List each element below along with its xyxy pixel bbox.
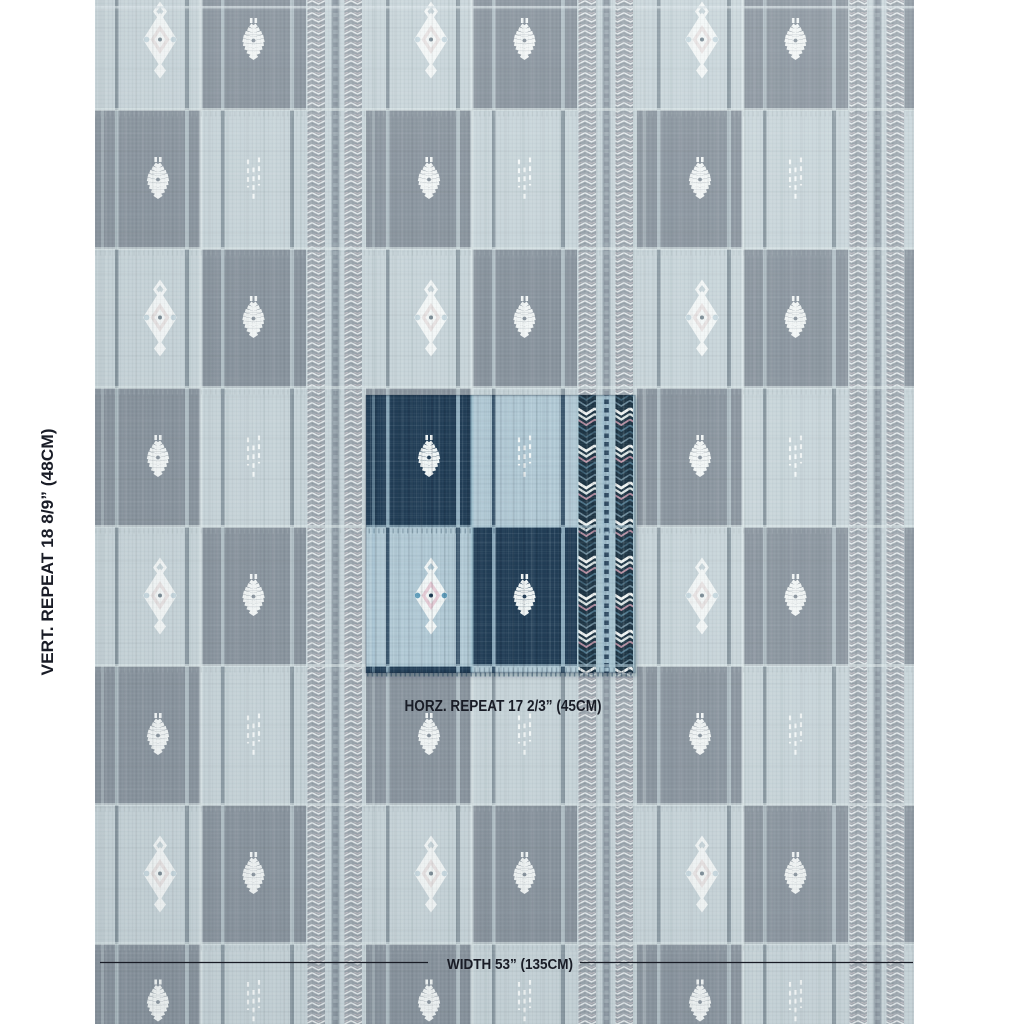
svg-text:HORZ. REPEAT 17 2/3” (45CM): HORZ. REPEAT 17 2/3” (45CM) xyxy=(405,698,602,715)
svg-text:VERT. REPEAT 18 8/9” (48CM): VERT. REPEAT 18 8/9” (48CM) xyxy=(38,429,57,676)
svg-text:WIDTH 53” (135CM): WIDTH 53” (135CM) xyxy=(447,956,573,973)
